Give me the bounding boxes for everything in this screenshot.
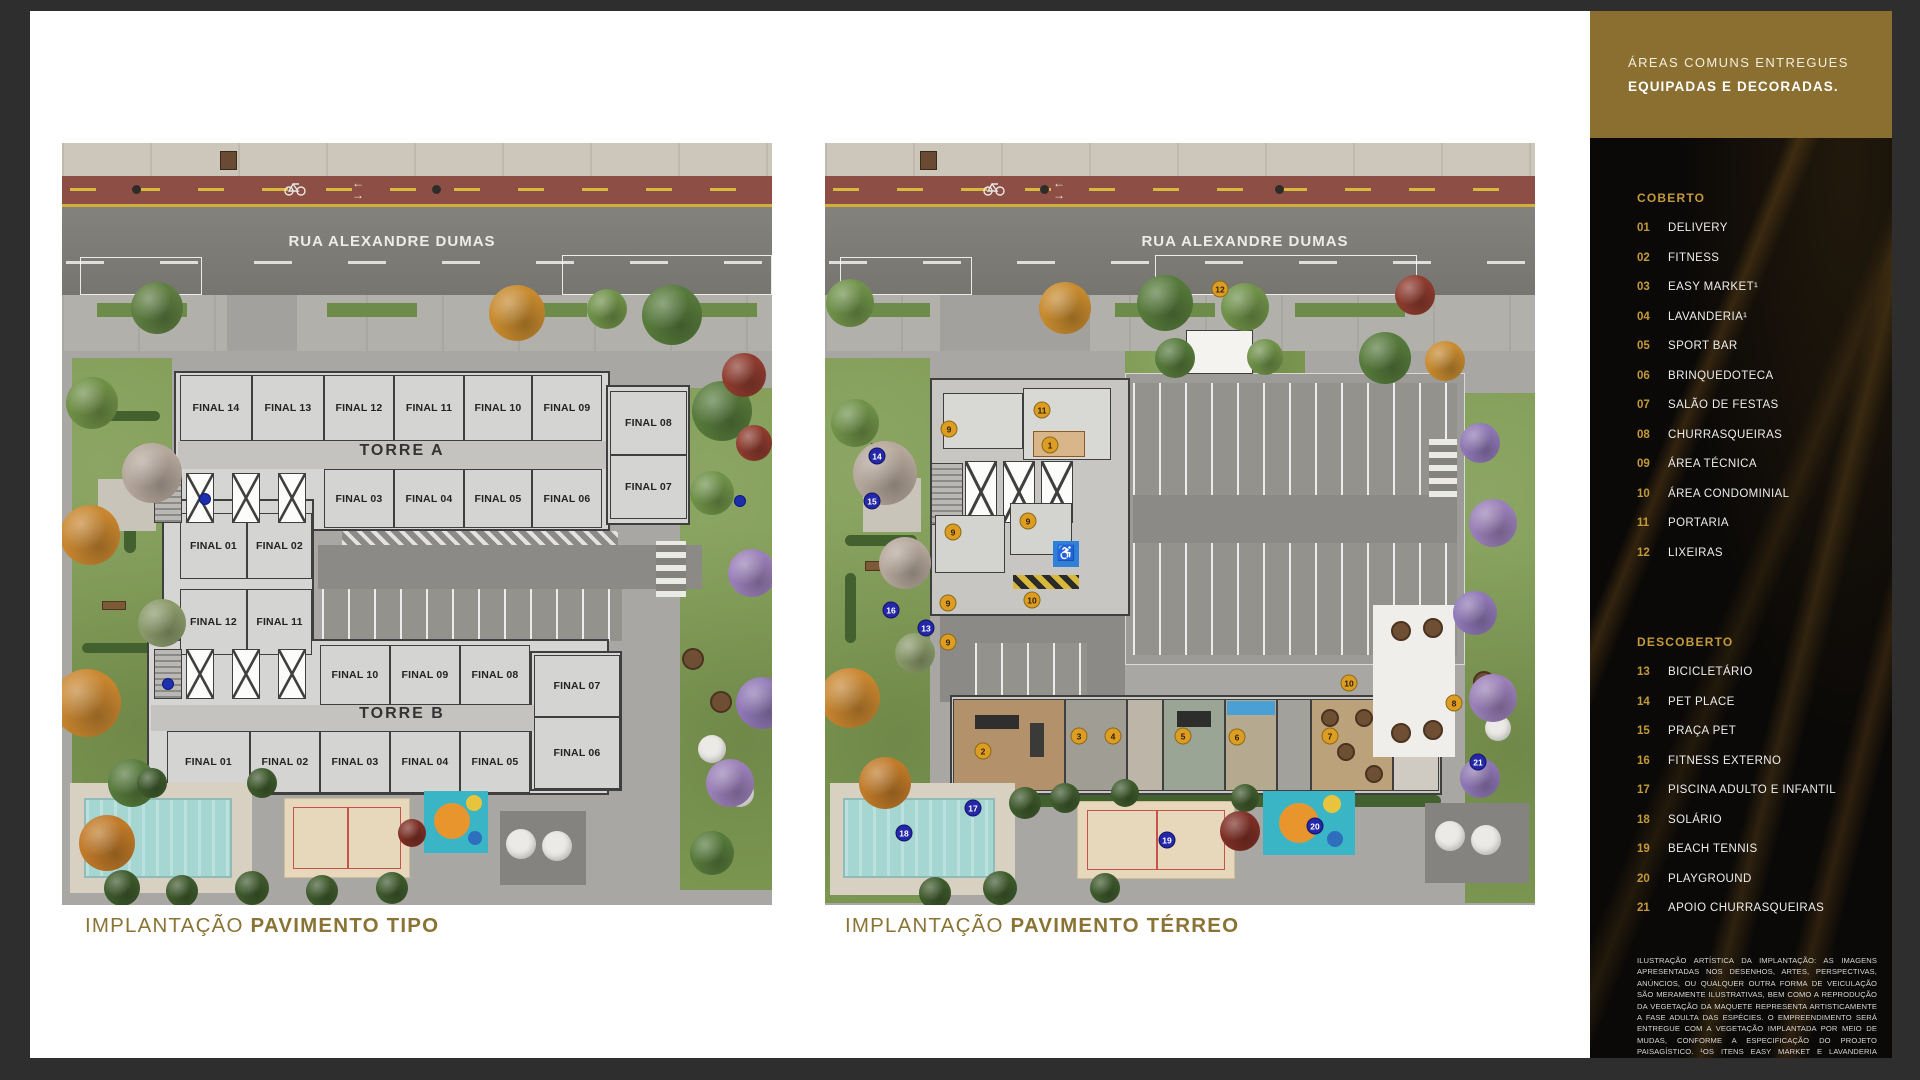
legend-item-label: FITNESS	[1659, 252, 1719, 264]
beach-tennis-court	[284, 798, 410, 878]
tree	[728, 549, 772, 597]
tree	[1359, 332, 1411, 384]
legend-sidebar: ÁREAS COMUNS ENTREGUES EQUIPADAS E DECOR…	[1590, 11, 1892, 1058]
legend-item-number: 03	[1637, 281, 1659, 293]
brochure-slide: ← → RUA ALEXANDRE DUMAS	[30, 11, 1892, 1058]
tree	[690, 471, 734, 515]
legend-item-number: 04	[1637, 311, 1659, 323]
unit-label: FINAL 08	[460, 645, 530, 705]
legend-section-coberto: COBERTO 01DELIVERY02FITNESS03EASY MARKET…	[1637, 191, 1867, 576]
crosswalk	[656, 541, 686, 597]
legend-item-churrasqueiras: 08CHURRASQUEIRAS	[1637, 429, 1867, 441]
tree	[79, 815, 135, 871]
water-tank	[1435, 821, 1465, 851]
tree	[587, 289, 627, 329]
bench	[102, 601, 126, 610]
caption-pavimento-terreo: IMPLANTAÇÃO PAVIMENTO TÉRREO	[845, 914, 1239, 938]
tree	[1111, 779, 1139, 807]
bike-lane-dashes	[833, 188, 1527, 191]
legend-item-biciclet-rio: 13BICICLETÁRIO	[1637, 666, 1867, 678]
bike-lane-dashes	[70, 188, 764, 191]
legend-item-number: 09	[1637, 458, 1659, 470]
pergola-table	[710, 691, 732, 713]
legend-item-number: 12	[1637, 547, 1659, 559]
area-tecnica-room	[935, 515, 1005, 573]
elevator-core	[965, 461, 997, 523]
tree	[831, 399, 879, 447]
tree	[1453, 591, 1497, 635]
tree	[895, 633, 935, 673]
marker-gold-9: 9	[940, 595, 957, 612]
bbq-table	[1423, 720, 1443, 740]
unit-label: FINAL 12	[324, 375, 394, 441]
parking-stalls	[975, 643, 1087, 699]
tree	[62, 505, 120, 565]
tree	[235, 871, 269, 905]
hedge	[82, 643, 152, 653]
legend-item-piscina-adulto-e-infantil: 17PISCINA ADULTO E INFANTIL	[1637, 784, 1867, 796]
pergola-table	[682, 648, 704, 670]
elevator-core	[278, 473, 306, 523]
marker-gold-3: 3	[1071, 728, 1088, 745]
bike-lane-icon	[284, 179, 306, 197]
sidebar-header: ÁREAS COMUNS ENTREGUES EQUIPADAS E DECOR…	[1590, 11, 1892, 138]
tree	[1425, 341, 1465, 381]
elevator-core	[232, 473, 260, 523]
tree	[1220, 811, 1260, 851]
tree	[1231, 784, 1259, 812]
tower-label: TORRE B	[359, 705, 445, 723]
elevator-core	[232, 649, 260, 699]
tree	[1469, 674, 1517, 722]
legend-item-label: DELIVERY	[1659, 222, 1728, 234]
drive-aisle	[1133, 495, 1457, 543]
tree	[706, 759, 754, 807]
legend-item-fitness: 02FITNESS	[1637, 252, 1867, 264]
hatched-strip	[342, 531, 618, 545]
marker-gold-4: 4	[1105, 728, 1122, 745]
unit-label: FINAL 03	[320, 731, 390, 793]
legend-item--rea-condominial: 10ÁREA CONDOMINIAL	[1637, 488, 1867, 500]
manhole	[432, 185, 441, 194]
street-name: RUA ALEXANDRE DUMAS	[1065, 233, 1425, 250]
legend-item-number: 18	[1637, 814, 1659, 826]
tree	[1247, 339, 1283, 375]
legend-item-sport-bar: 05SPORT BAR	[1637, 340, 1867, 352]
pool-table	[1177, 711, 1211, 727]
legend-item-number: 14	[1637, 696, 1659, 708]
legend-item-number: 15	[1637, 725, 1659, 737]
unit-label: FINAL 14	[180, 375, 252, 441]
marker-gold-10: 10	[1024, 592, 1041, 609]
legend-item-label: ÁREA TÉCNICA	[1659, 458, 1757, 470]
elevator-core	[278, 649, 306, 699]
utility-box	[220, 151, 237, 170]
unit-label: FINAL 03	[324, 469, 394, 528]
marker-gold-1: 1	[1042, 437, 1059, 454]
elevator-core	[186, 649, 214, 699]
marker-blue-19: 19	[1159, 832, 1176, 849]
legend-item-label: LAVANDERIA¹	[1659, 311, 1747, 323]
marker-gold-5: 5	[1175, 728, 1192, 745]
manhole	[132, 185, 141, 194]
sidebar-header-line1: ÁREAS COMUNS ENTREGUES	[1628, 55, 1892, 70]
legend-section-title: COBERTO	[1637, 191, 1867, 205]
tree	[642, 285, 702, 345]
playground	[424, 791, 488, 853]
legend-item-pra-a-pet: 15PRAÇA PET	[1637, 725, 1867, 737]
legend-item-label: PORTARIA	[1659, 517, 1729, 529]
tree	[919, 877, 951, 905]
legend-item-number: 19	[1637, 843, 1659, 855]
unit-label: FINAL 04	[390, 731, 460, 793]
tree	[722, 353, 766, 397]
legend-item-label: PISCINA ADULTO E INFANTIL	[1659, 784, 1836, 796]
legend-item-label: BRINQUEDOTECA	[1659, 370, 1774, 382]
water-tank	[1471, 825, 1501, 855]
site-plan-pavimento-terreo: ← → RUA ALEXANDRE DUMAS	[825, 143, 1535, 905]
legend-item-sal-o-de-festas: 07SALÃO DE FESTAS	[1637, 399, 1867, 411]
marker-blue-18: 18	[896, 825, 913, 842]
tree	[1039, 282, 1091, 334]
tree	[104, 870, 140, 905]
marker-gold-6: 6	[1229, 729, 1246, 746]
marker-gold-7: 7	[1322, 728, 1339, 745]
legend-item-beach-tennis: 19BEACH TENNIS	[1637, 843, 1867, 855]
garden-right	[680, 388, 772, 890]
easy-market-room	[1065, 699, 1127, 791]
marker-gold-9: 9	[940, 634, 957, 651]
legend-item-label: EASY MARKET¹	[1659, 281, 1758, 293]
hedge	[845, 573, 856, 643]
tree	[1090, 873, 1120, 903]
tree	[122, 443, 182, 503]
legend-item-label: BEACH TENNIS	[1659, 843, 1758, 855]
legend-item-label: ÁREA CONDOMINIAL	[1659, 488, 1789, 500]
legend-item-lixeiras: 12LIXEIRAS	[1637, 547, 1867, 559]
site-plan-pavimento-tipo: ← → RUA ALEXANDRE DUMAS	[62, 143, 772, 905]
marker-blue-14: 14	[869, 448, 886, 465]
tree	[736, 425, 772, 461]
legend-section-descoberto: DESCOBERTO 13BICICLETÁRIO14PET PLACE15PR…	[1637, 635, 1867, 932]
legend-item-label: FITNESS EXTERNO	[1659, 755, 1781, 767]
legend-item-label: APOIO CHURRASQUEIRAS	[1659, 902, 1824, 914]
sidebar-header-line2: EQUIPADAS E DECORADAS.	[1628, 79, 1892, 94]
legend-item-label: SPORT BAR	[1659, 340, 1738, 352]
caption-bold: PAVIMENTO TÉRREO	[1011, 914, 1240, 937]
yellow-black-hatch	[1013, 575, 1079, 589]
tower-label: TORRE A	[359, 442, 444, 460]
marker-gold-9: 9	[945, 524, 962, 541]
kids-mural	[1227, 701, 1275, 715]
round-table	[1321, 709, 1339, 727]
legend-item-number: 08	[1637, 429, 1659, 441]
tree	[247, 768, 277, 798]
legend-item-label: SALÃO DE FESTAS	[1659, 399, 1779, 411]
umbrella	[698, 735, 726, 763]
legend-item-label: BICICLETÁRIO	[1659, 666, 1753, 678]
marker-gold-9: 9	[1020, 513, 1037, 530]
water-tank	[542, 831, 572, 861]
accessible-parking-icon: ♿	[1053, 541, 1079, 567]
caption-pavimento-tipo: IMPLANTAÇÃO PAVIMENTO TIPO	[85, 914, 439, 938]
legend-item-number: 20	[1637, 873, 1659, 885]
unit-label: FINAL 12	[180, 589, 247, 655]
legend-item-number: 10	[1637, 488, 1659, 500]
legend-item-portaria: 11PORTARIA	[1637, 517, 1867, 529]
marker-blue-13: 13	[918, 620, 935, 637]
green-strip	[327, 303, 417, 317]
round-table	[1337, 743, 1355, 761]
legend-item-number: 11	[1637, 517, 1659, 529]
marker-gold-8: 8	[1446, 695, 1463, 712]
unit-label: FINAL 05	[464, 469, 532, 528]
tree	[489, 285, 545, 341]
direction-arrow-right: →	[1053, 189, 1065, 201]
lavanderia-room	[1127, 699, 1163, 791]
tree	[859, 757, 911, 809]
lixeiras-room	[1186, 330, 1253, 374]
driveway-apron	[227, 295, 297, 351]
unit-label: FINAL 08	[610, 391, 687, 455]
tree	[398, 819, 426, 847]
light-pole-dot	[734, 495, 746, 507]
legend-items: 01DELIVERY02FITNESS03EASY MARKET¹04LAVAN…	[1637, 222, 1867, 559]
direction-arrow-right: →	[352, 189, 364, 201]
legend-item-number: 17	[1637, 784, 1659, 796]
parking-stalls	[322, 589, 622, 641]
unit-label: FINAL 06	[532, 469, 602, 528]
unit-label: FINAL 09	[532, 375, 602, 441]
legend-item-number: 16	[1637, 755, 1659, 767]
round-table	[1365, 765, 1383, 783]
utility-box	[920, 151, 937, 170]
tree	[1155, 338, 1195, 378]
marker-blue-16: 16	[883, 602, 900, 619]
unit-label: FINAL 11	[394, 375, 464, 441]
round-table	[1355, 709, 1373, 727]
tree	[879, 537, 931, 589]
unit-label: FINAL 09	[390, 645, 460, 705]
area-tecnica-room	[943, 393, 1023, 449]
legend-item-sol-rio: 18SOLÁRIO	[1637, 814, 1867, 826]
caption-bold: PAVIMENTO TIPO	[251, 914, 440, 937]
tree	[131, 282, 183, 334]
legend-item-apoio-churrasqueiras: 21APOIO CHURRASQUEIRAS	[1637, 902, 1867, 914]
stairs	[154, 649, 182, 699]
sidewalk-top	[62, 143, 772, 176]
tree	[690, 831, 734, 875]
tree	[983, 871, 1017, 905]
legend-section-title: DESCOBERTO	[1637, 635, 1867, 649]
tree	[376, 872, 408, 904]
gym-equipment	[1030, 723, 1044, 757]
tree	[1460, 423, 1500, 463]
marker-gold-10: 10	[1341, 675, 1358, 692]
unit-label: FINAL 10	[320, 645, 390, 705]
bbq-table	[1391, 621, 1411, 641]
legend-item-number: 13	[1637, 666, 1659, 678]
tree	[138, 599, 186, 647]
street-parking-bay	[1155, 255, 1417, 295]
drive-aisle	[318, 545, 702, 589]
marker-blue-17: 17	[965, 800, 982, 817]
caption-regular: IMPLANTAÇÃO	[85, 914, 244, 937]
beach-tennis-court	[1077, 801, 1235, 879]
legend-item-label: PRAÇA PET	[1659, 725, 1736, 737]
street-name: RUA ALEXANDRE DUMAS	[192, 233, 592, 250]
unit-label: FINAL 06	[534, 717, 620, 789]
manhole	[1040, 185, 1049, 194]
marker-gold-12: 12	[1212, 281, 1229, 298]
legend-item-number: 21	[1637, 902, 1659, 914]
legal-disclaimer: ILUSTRAÇÃO ARTÍSTICA DA IMPLANTAÇÃO: AS …	[1637, 955, 1877, 1058]
tree	[1469, 499, 1517, 547]
marker-gold-2: 2	[975, 743, 992, 760]
legend-item-playground: 20PLAYGROUND	[1637, 873, 1867, 885]
crosswalk	[1429, 439, 1457, 497]
legend-item-number: 02	[1637, 252, 1659, 264]
legend-item-lavanderia-: 04LAVANDERIA¹	[1637, 311, 1867, 323]
legend-item-fitness-externo: 16FITNESS EXTERNO	[1637, 755, 1867, 767]
unit-label: FINAL 05	[460, 731, 530, 793]
legend-item-label: LIXEIRAS	[1659, 547, 1723, 559]
unit-label: FINAL 13	[252, 375, 324, 441]
marker-gold-9: 9	[941, 421, 958, 438]
bike-lane-icon	[983, 179, 1005, 197]
water-tank	[506, 829, 536, 859]
bbq-table	[1423, 618, 1443, 638]
fitness-room	[953, 699, 1065, 791]
tree	[137, 768, 167, 798]
caption-regular: IMPLANTAÇÃO	[845, 914, 1004, 937]
marker-gold-11: 11	[1034, 402, 1051, 419]
legend-item-number: 01	[1637, 222, 1659, 234]
bbq-table	[1391, 723, 1411, 743]
green-strip	[1295, 303, 1405, 317]
tree	[306, 875, 338, 905]
unit-label: FINAL 07	[534, 655, 620, 717]
unit-label: FINAL 07	[610, 455, 687, 519]
tree	[826, 279, 874, 327]
legend-item-number: 05	[1637, 340, 1659, 352]
marker-blue-20: 20	[1307, 818, 1324, 835]
unit-label: FINAL 10	[464, 375, 532, 441]
legend-item--rea-t-cnica: 09ÁREA TÉCNICA	[1637, 458, 1867, 470]
legend-item-pet-place: 14PET PLACE	[1637, 696, 1867, 708]
legend-item-label: PET PLACE	[1659, 696, 1735, 708]
legend-item-label: PLAYGROUND	[1659, 873, 1752, 885]
tree	[853, 441, 917, 505]
legend-item-delivery: 01DELIVERY	[1637, 222, 1867, 234]
parking-stalls	[1133, 383, 1457, 495]
legend-item-easy-market-: 03EASY MARKET¹	[1637, 281, 1867, 293]
legend-item-label: SOLÁRIO	[1659, 814, 1722, 826]
tree	[166, 875, 198, 905]
unit-label: FINAL 11	[247, 589, 312, 655]
marker-blue-15: 15	[864, 493, 881, 510]
legend-item-number: 07	[1637, 399, 1659, 411]
tree	[66, 377, 118, 429]
gym-equipment	[975, 715, 1019, 729]
laundry-machines-room	[1277, 699, 1311, 791]
marker-blue-21: 21	[1470, 754, 1487, 771]
tree	[1395, 275, 1435, 315]
tree	[1009, 787, 1041, 819]
legend-item-label: CHURRASQUEIRAS	[1659, 429, 1782, 441]
legend-item-brinquedoteca: 06BRINQUEDOTECA	[1637, 370, 1867, 382]
light-pole-dot	[162, 678, 174, 690]
unit-label: FINAL 04	[394, 469, 464, 528]
legend-items: 13BICICLETÁRIO14PET PLACE15PRAÇA PET16FI…	[1637, 666, 1867, 914]
tree	[1050, 783, 1080, 813]
legend-item-number: 06	[1637, 370, 1659, 382]
tree	[1137, 275, 1193, 331]
manhole	[1275, 185, 1284, 194]
light-pole-dot	[199, 493, 211, 505]
